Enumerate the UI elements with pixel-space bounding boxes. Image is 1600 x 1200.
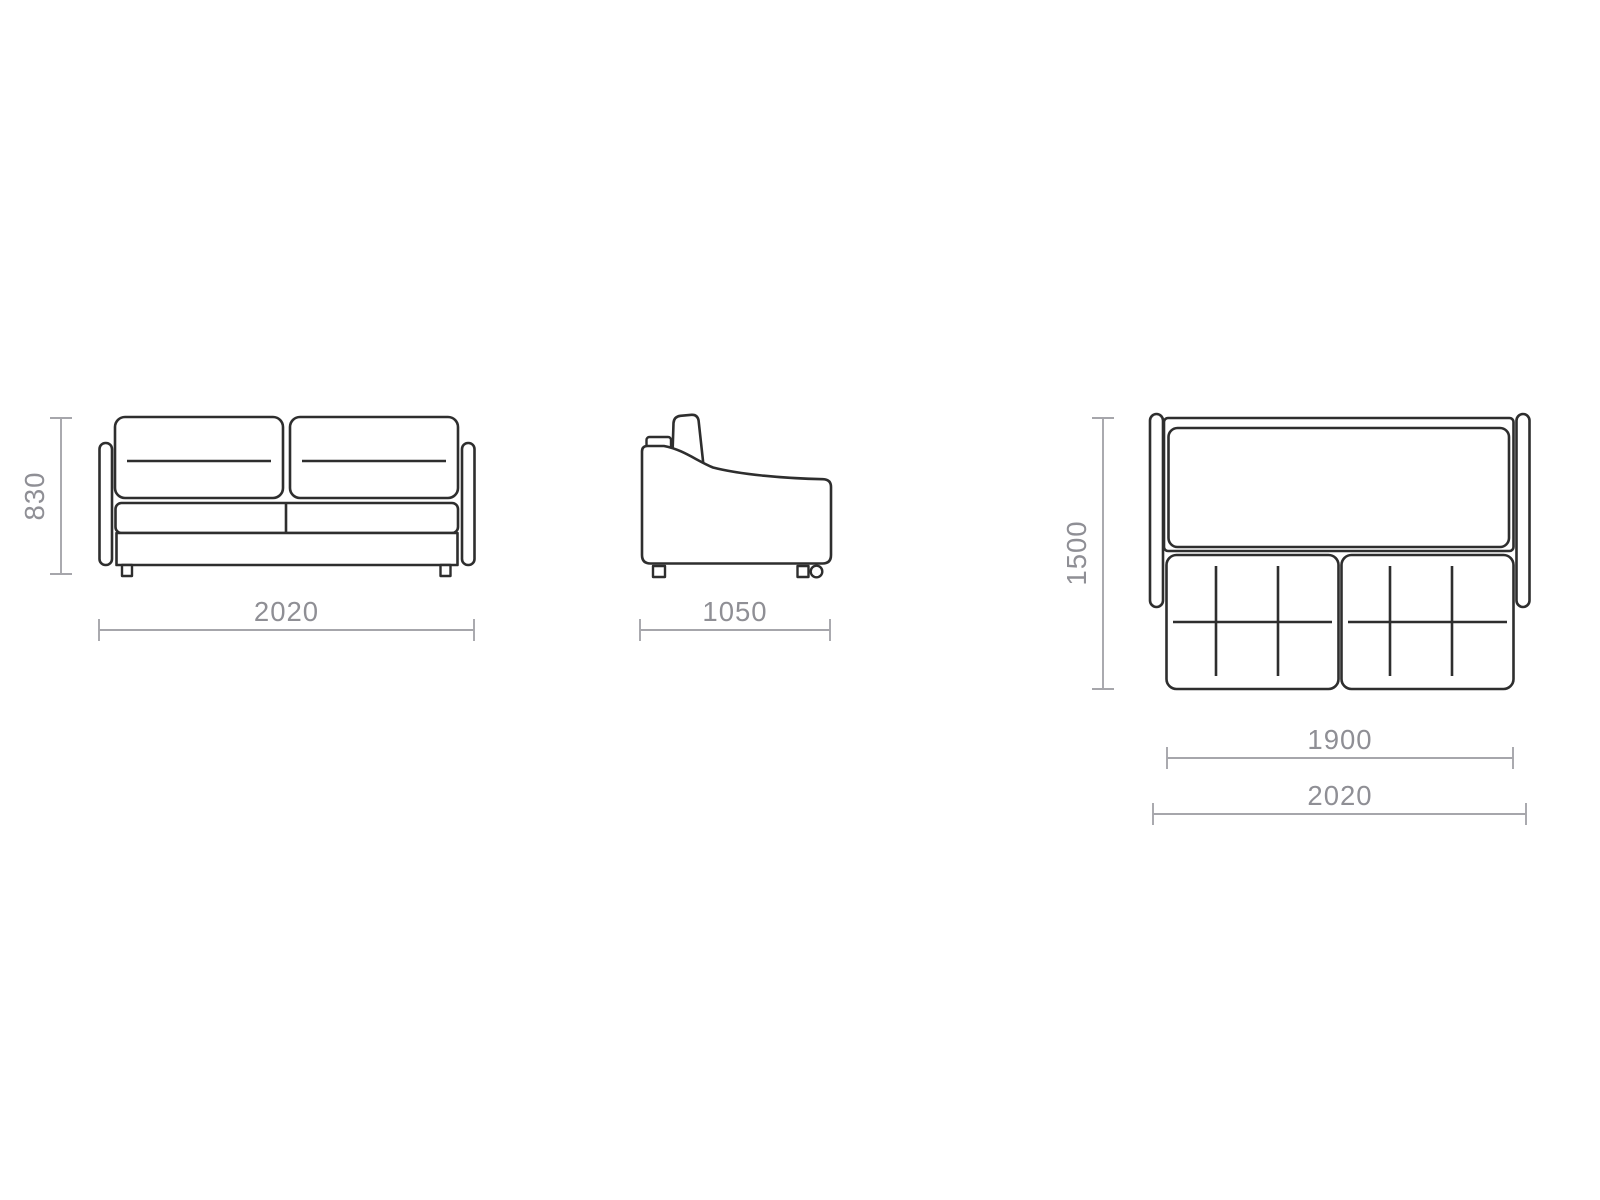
top-depth-label: 1500 <box>1061 520 1092 585</box>
front-back-cushion-right <box>290 417 458 498</box>
top-armrest-left <box>1150 414 1163 607</box>
side-view-dimensions: 1050 <box>640 596 830 641</box>
side-depth-label: 1050 <box>702 596 767 627</box>
front-armrest-left <box>100 443 113 565</box>
top-overall-width-label: 2020 <box>1307 780 1372 811</box>
side-view <box>642 415 831 578</box>
top-mattress-back <box>1169 428 1510 547</box>
front-back-cushion-left <box>115 417 283 498</box>
front-armrest-right <box>462 443 475 565</box>
side-wheel <box>811 566 823 578</box>
front-base <box>117 533 458 565</box>
front-height-label: 830 <box>19 472 50 521</box>
front-foot-right <box>441 565 451 576</box>
side-foot-front <box>653 566 665 577</box>
top-armrest-right <box>1517 414 1530 607</box>
sofa-dimension-diagram: 830 2020 1050 <box>0 0 1600 1200</box>
side-foot-back <box>798 566 809 577</box>
front-width-label: 2020 <box>254 596 319 627</box>
side-body <box>642 446 831 564</box>
front-foot-left <box>122 565 132 576</box>
top-view <box>1150 414 1530 689</box>
top-mattress-width-label: 1900 <box>1307 724 1372 755</box>
front-view <box>100 417 475 576</box>
